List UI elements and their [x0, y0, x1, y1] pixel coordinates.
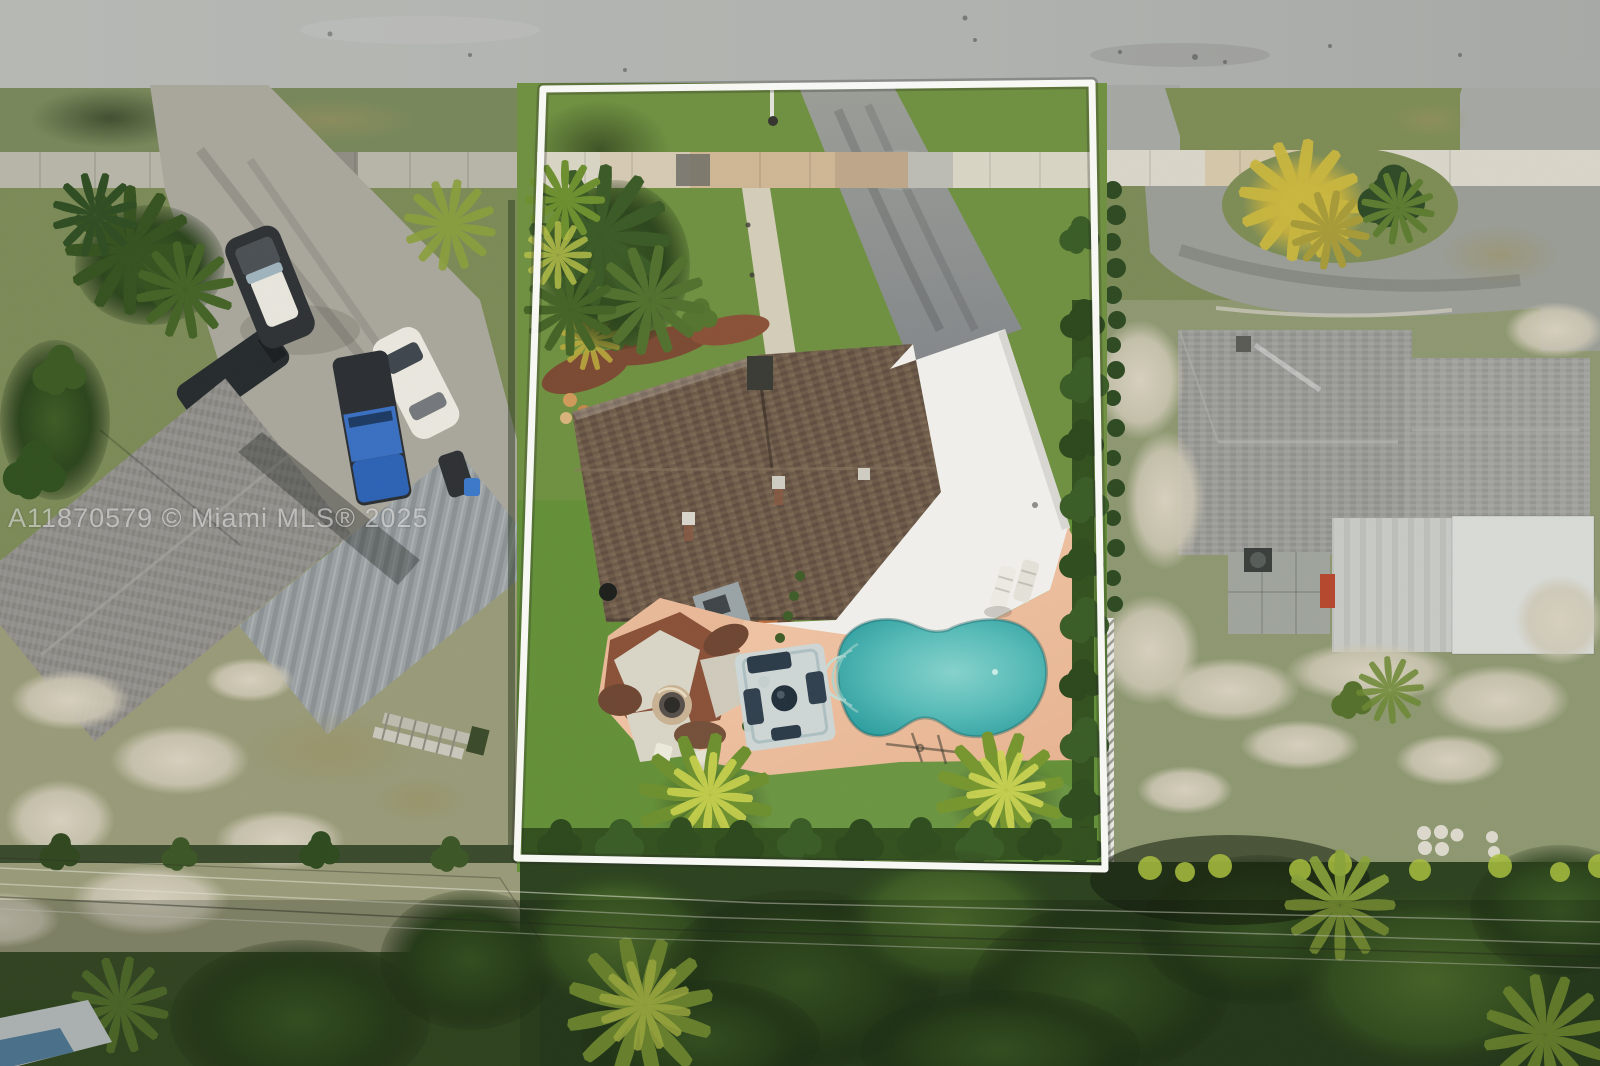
aerial-scene — [0, 0, 1600, 1066]
aerial-photo: A11870579 © Miami MLS® 2025 — [0, 0, 1600, 1066]
bottom-vignette — [0, 900, 1600, 1066]
